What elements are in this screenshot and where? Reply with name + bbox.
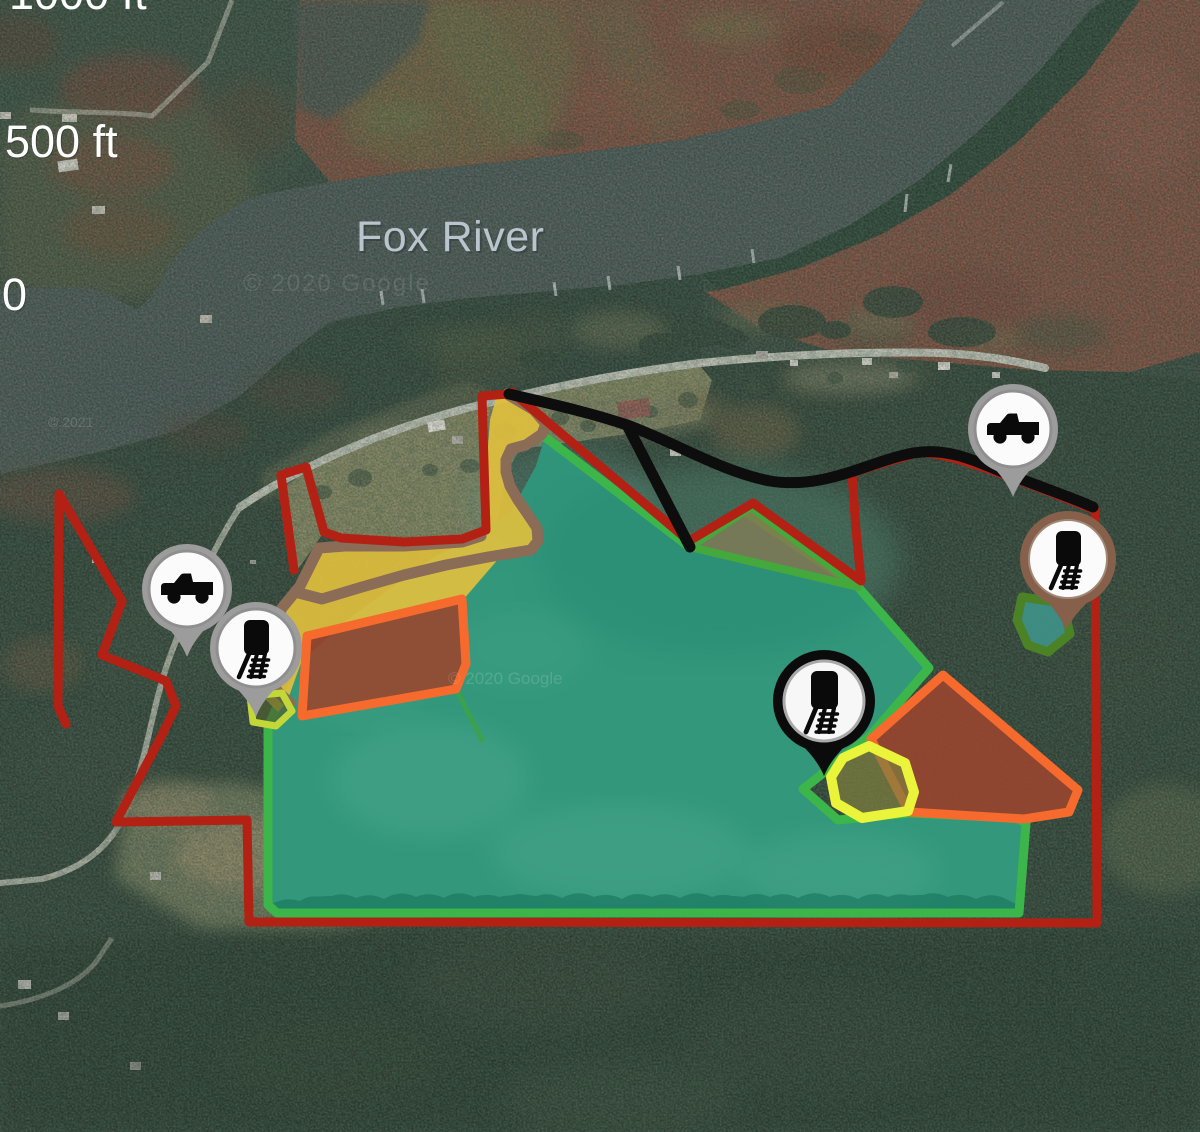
svg-text:0: 0	[2, 269, 27, 320]
svg-text:500 ft: 500 ft	[5, 116, 118, 167]
svg-text:1000 ft: 1000 ft	[9, 0, 147, 19]
svg-text:Fox River: Fox River	[356, 213, 544, 261]
svg-text:© 2021: © 2021	[48, 414, 94, 430]
svg-text:© 2020 Google: © 2020 Google	[448, 669, 563, 688]
svg-text:© 2020 Google: © 2020 Google	[243, 270, 431, 297]
